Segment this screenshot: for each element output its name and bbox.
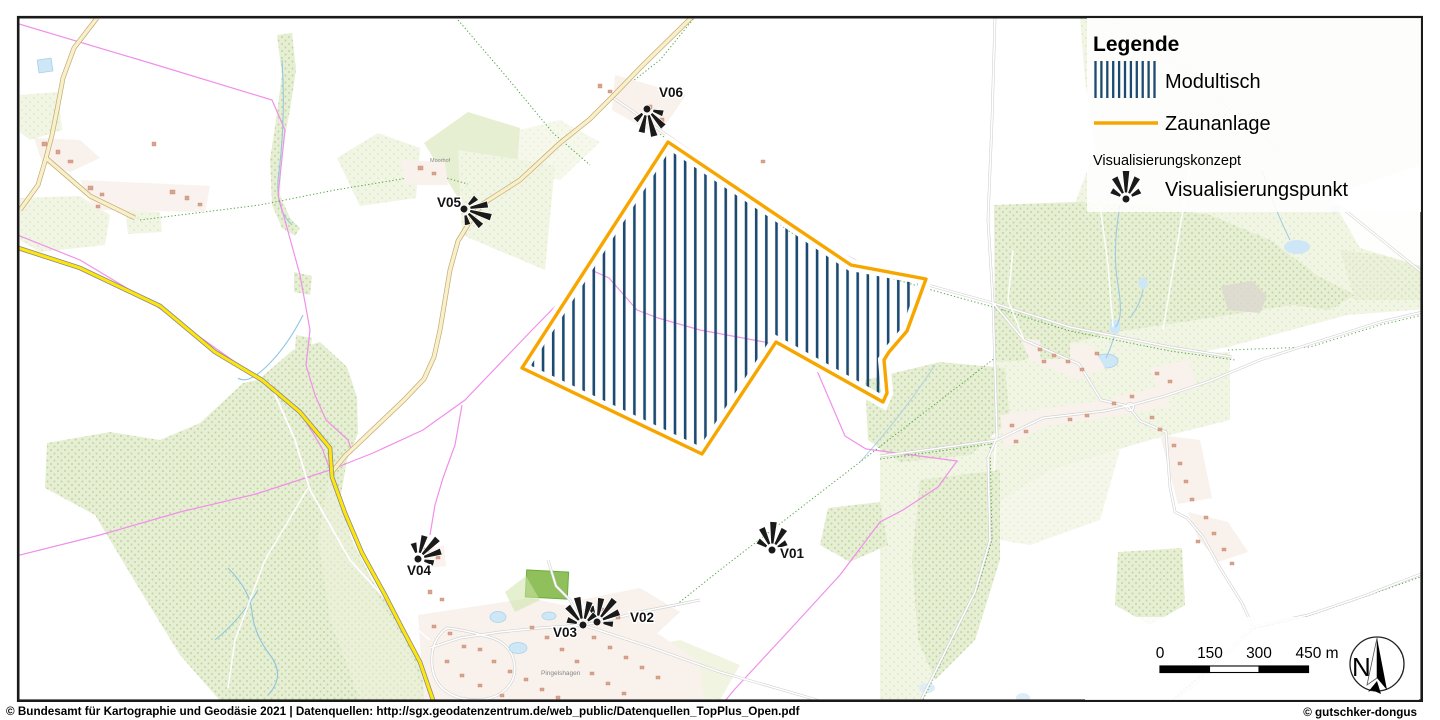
svg-text:V01: V01	[780, 546, 805, 561]
svg-text:Visualisierungskonzept: Visualisierungskonzept	[1093, 153, 1241, 169]
svg-text:Visualisierungspunkt: Visualisierungspunkt	[1165, 179, 1349, 201]
svg-text:V05: V05	[437, 195, 462, 210]
svg-text:V04: V04	[407, 563, 432, 578]
svg-text:Modultisch: Modultisch	[1165, 71, 1261, 93]
svg-text:450 m: 450 m	[1295, 645, 1338, 662]
svg-text:0: 0	[1156, 645, 1165, 662]
svg-text:V06: V06	[659, 85, 684, 100]
svg-text:Pingelshagen: Pingelshagen	[541, 670, 581, 677]
svg-text:V03: V03	[553, 625, 578, 640]
svg-text:Moorhof: Moorhof	[430, 158, 451, 164]
svg-text:Zaunanlage: Zaunanlage	[1165, 113, 1271, 135]
svg-text:Legende: Legende	[1093, 33, 1179, 56]
svg-text:300: 300	[1246, 645, 1272, 662]
svg-text:150: 150	[1197, 645, 1223, 662]
svg-text:N: N	[1352, 652, 1371, 682]
svg-text:V02: V02	[630, 610, 654, 625]
svg-text:© Bundesamt für Kartographie u: © Bundesamt für Kartographie und Geodäsi…	[6, 705, 800, 718]
svg-text:© gutschker-dongus: © gutschker-dongus	[1303, 706, 1417, 719]
